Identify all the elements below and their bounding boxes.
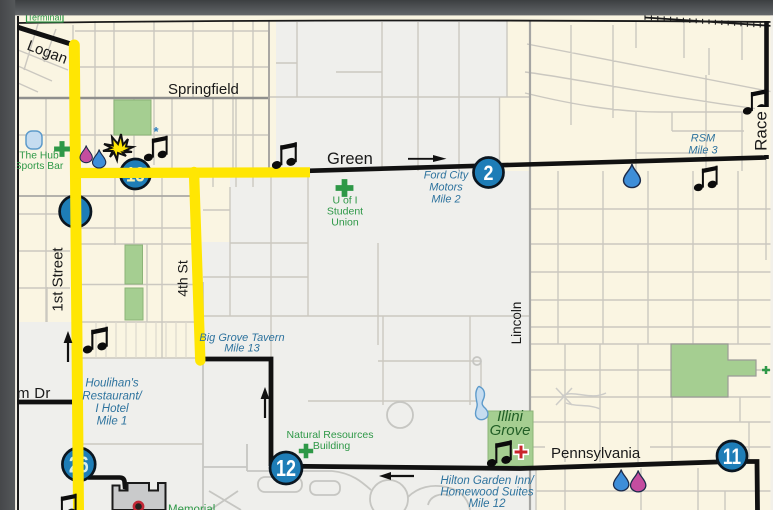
- svg-text:12: 12: [276, 456, 296, 482]
- svg-text:RSM: RSM: [691, 133, 716, 145]
- svg-text:Memorial: Memorial: [168, 504, 215, 510]
- svg-text:Mile 13: Mile 13: [224, 343, 260, 355]
- svg-text:The Hub: The Hub: [19, 151, 59, 162]
- svg-text:Hilton Garden Inn/: Hilton Garden Inn/: [440, 475, 535, 487]
- svg-text:Springfield: Springfield: [168, 81, 239, 98]
- svg-text:11: 11: [723, 445, 741, 470]
- svg-text:Grove: Grove: [490, 422, 531, 439]
- svg-text:Homewood Suites: Homewood Suites: [440, 487, 534, 499]
- svg-text:Mile 1: Mile 1: [97, 416, 128, 428]
- svg-text:Union: Union: [331, 217, 359, 229]
- svg-text:Mile 3: Mile 3: [688, 145, 718, 157]
- svg-text:Green: Green: [327, 150, 373, 168]
- svg-text:Race: Race: [752, 111, 771, 151]
- svg-text:Mile 12: Mile 12: [468, 498, 506, 510]
- svg-text:Mile 2: Mile 2: [431, 194, 460, 206]
- svg-text:I Hotel: I Hotel: [95, 403, 129, 415]
- svg-text:2: 2: [484, 162, 494, 186]
- svg-text:Pennsylvania: Pennsylvania: [551, 445, 641, 462]
- svg-text:Building: Building: [313, 440, 351, 452]
- svg-text:Sports Bar: Sports Bar: [15, 161, 64, 172]
- svg-text:Houlihan's: Houlihan's: [85, 378, 139, 390]
- svg-text:Lincoln: Lincoln: [509, 302, 524, 345]
- svg-text:Restaurant/: Restaurant/: [82, 391, 143, 403]
- svg-text:m Dr: m Dr: [17, 385, 51, 402]
- svg-text:Motors: Motors: [429, 182, 463, 194]
- svg-text:Ford City: Ford City: [424, 170, 470, 182]
- svg-text:4th St: 4th St: [175, 260, 191, 297]
- svg-text:1st Street: 1st Street: [50, 247, 67, 312]
